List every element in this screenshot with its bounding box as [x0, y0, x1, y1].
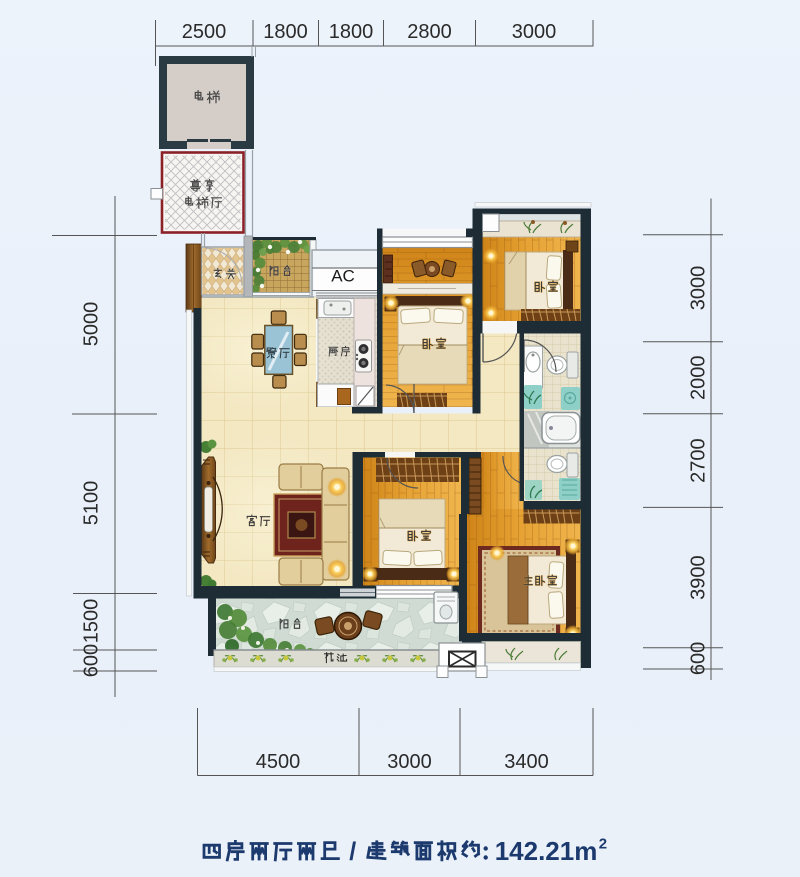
svg-text:600: 600	[687, 642, 709, 675]
svg-text:1800: 1800	[329, 21, 374, 43]
svg-text:/: /	[349, 838, 356, 866]
svg-text:600: 600	[80, 644, 102, 677]
svg-text:5100: 5100	[80, 481, 102, 526]
svg-text:2700: 2700	[687, 438, 709, 483]
svg-text:142.21m: 142.21m	[495, 836, 598, 866]
svg-text:3000: 3000	[512, 21, 557, 43]
svg-text:3400: 3400	[504, 751, 549, 773]
svg-text:3000: 3000	[687, 266, 709, 311]
svg-text:1800: 1800	[263, 21, 308, 43]
svg-text:2800: 2800	[407, 21, 452, 43]
svg-text:AC: AC	[331, 267, 355, 286]
svg-text:3900: 3900	[687, 555, 709, 600]
svg-text:3000: 3000	[387, 751, 432, 773]
svg-text:2: 2	[599, 836, 607, 853]
svg-text:5000: 5000	[80, 302, 102, 347]
svg-text:2000: 2000	[687, 356, 709, 401]
svg-text:2500: 2500	[182, 21, 227, 43]
svg-text:4500: 4500	[256, 751, 301, 773]
svg-text:1500: 1500	[80, 599, 102, 644]
